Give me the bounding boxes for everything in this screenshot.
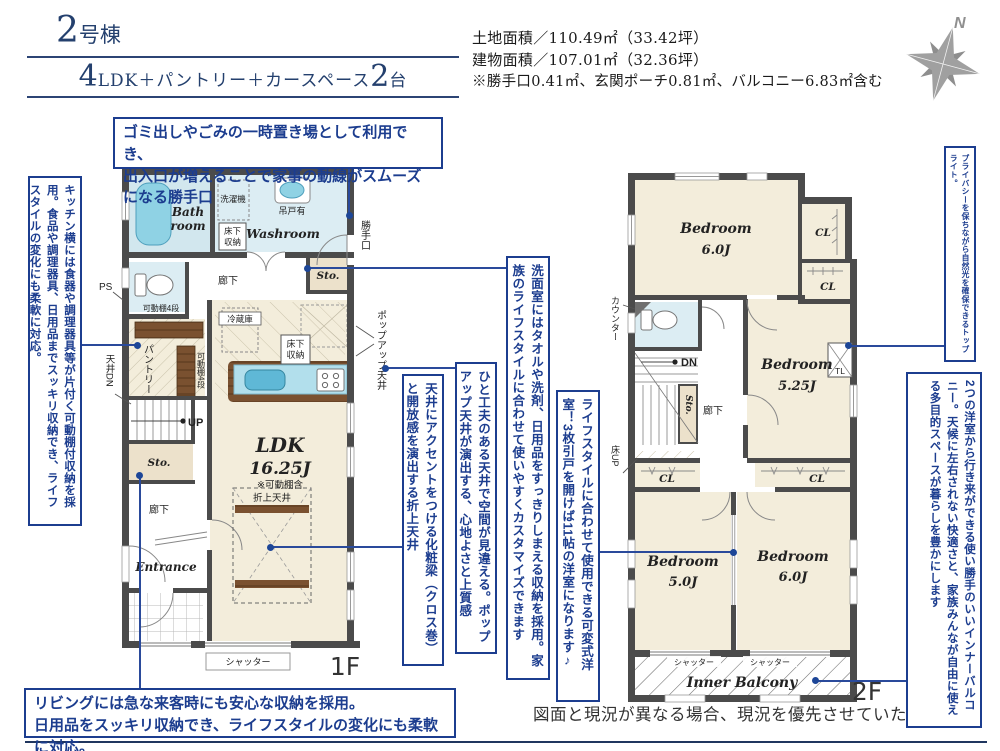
leader-popup <box>385 367 455 369</box>
leader-dot-washroom <box>304 265 311 272</box>
svg-text:6.0J: 6.0J <box>702 243 732 258</box>
floorplan-page: 2号棟 4LDK＋パントリー＋カースペース2台 土地面積／110.49㎡（33.… <box>0 0 1000 751</box>
pantry-shelf-icon <box>135 322 203 338</box>
leader-toplight <box>848 345 944 347</box>
note-living: リビングには急な来客時にも安心な収納を採用。 日用品をスッキリ収納でき、ライフス… <box>24 688 456 738</box>
land-area: 土地面積／110.49㎡（33.42坪） <box>472 27 883 49</box>
balcony-label: Inner Balcony <box>686 675 798 691</box>
leader-dot-living <box>136 472 143 479</box>
leader-dot-kitchen <box>134 342 141 349</box>
plan-num2: 2 <box>370 59 389 94</box>
ldk-label: LDK <box>255 433 306 457</box>
compass-icon: N <box>898 10 990 106</box>
entrance-label: Entrance <box>134 560 197 574</box>
hall1-label: 廊下 <box>218 274 238 287</box>
header-rule-top <box>27 56 459 58</box>
underfloor1-label: 床下 <box>224 226 242 236</box>
leader-beam <box>270 546 402 548</box>
plan-type-line: 4LDK＋パントリー＋カースペース2台 <box>27 59 459 94</box>
toilet2-icon <box>653 311 677 329</box>
leader-kitchen <box>80 344 137 346</box>
oriage-label: 折上天井 <box>253 492 291 504</box>
note-popup-ceiling: ひと工夫のある天井で空間が見違える。ポップアップ天井が演出する、心地よさと上質感 <box>455 362 497 654</box>
ldk-size-label: 16.25J <box>249 459 311 479</box>
hang-cabinet-label: 吊戸有 <box>278 205 305 216</box>
compass-n-label: N <box>954 15 966 32</box>
yuka-up-label: 床UP <box>610 444 620 467</box>
shelf1-label: 可動棚4段 <box>143 303 179 313</box>
svg-text:5.25J: 5.25J <box>778 379 817 394</box>
up-label: UP <box>188 417 203 429</box>
leader-dot-toplight <box>845 342 852 349</box>
washroom-label: Washroom <box>246 226 320 241</box>
note-balcony: 2つの洋室から行き来ができる使い勝手のいいインナーバルコニー。天候に左右されない… <box>906 372 982 728</box>
fridge-label: 冷蔵庫 <box>227 314 253 324</box>
page-title: 2号棟 <box>56 10 121 51</box>
leader-dot-katteguchi <box>346 212 353 219</box>
building-area: 建物面積／107.01㎡（32.36坪） <box>472 49 883 71</box>
sto-left-label: Sto. <box>148 457 171 469</box>
ldk-note-label: ※可動棚含 <box>257 479 303 491</box>
br4-label: Bedroom <box>756 549 828 565</box>
br1-label: Bedroom <box>679 221 751 237</box>
svg-text:収納: 収納 <box>286 349 304 360</box>
sto-top-label: Sto. <box>317 270 340 282</box>
cl3-label: CL <box>659 473 675 485</box>
underfloor2-label: 床下 <box>286 338 304 349</box>
leader-balcony <box>815 680 906 682</box>
svg-text:収納: 収納 <box>224 237 241 247</box>
hall-2f-label: 廊下 <box>703 404 723 417</box>
kitchen-shelf-icon <box>177 346 195 396</box>
washer-label: 洗濯機 <box>220 194 246 204</box>
cl4-label: CL <box>809 473 825 485</box>
leader-dot-popup <box>382 365 389 372</box>
leader-dot-beam <box>267 544 274 551</box>
plan-num1: 4 <box>79 59 98 94</box>
leader-dot-balcony <box>812 677 819 684</box>
bath-label2: room <box>170 219 205 233</box>
stove-icon <box>317 369 344 391</box>
dn-label: DN <box>681 357 697 369</box>
stairs-1f-icon <box>137 400 185 440</box>
sto-2f-label: Sto. <box>683 395 693 415</box>
note-katteguchi: ゴミ出しやごみの一時置き場として利用でき、 出入口が増えることで家事の動線がスム… <box>113 117 443 169</box>
area-note: ※勝手口0.41㎡、玄関ポーチ0.81㎡、バルコニー6.83㎡含む <box>472 71 883 93</box>
kitchen-sink-icon <box>245 370 285 390</box>
shelf2-label: 可動棚4段 <box>197 352 206 389</box>
shutter2-label: シャッター <box>750 658 790 667</box>
leader-dot-flex-room <box>730 549 737 556</box>
cl1-label: CL <box>815 227 831 239</box>
note-washroom: 洗面室にはタオルや洗剤、日用品をすっきりしまえる収納を採用。家族のライフスタイル… <box>506 256 550 680</box>
svg-text:5.0J: 5.0J <box>669 575 699 590</box>
plan-mid: LDK＋パントリー＋カースペース <box>98 71 371 91</box>
area-figures: 土地面積／110.49㎡（33.42坪） 建物面積／107.01㎡（32.36坪… <box>472 27 883 93</box>
bottom-rule <box>25 741 987 743</box>
br2-label: Bedroom <box>760 357 832 373</box>
ps-label: PS <box>99 282 113 293</box>
ceiling-dn-label: 天井DN <box>104 354 116 387</box>
leader-living <box>139 475 141 688</box>
toilet-icon <box>147 275 173 295</box>
br3-label: Bedroom <box>646 554 718 570</box>
unit-suffix: 号棟 <box>79 23 121 47</box>
note-kitchen: キッチン横には食器や調理器具等が片付く可動棚付収納を採用。食品や調理器具、日用品… <box>28 176 82 526</box>
hall2-label: 廊下 <box>149 503 169 516</box>
note-toplight: プライバシーを保ちながら自然光を確保できるトップライト。 <box>944 146 976 362</box>
floor1-label: 1F <box>330 652 360 680</box>
leader-flex-room <box>598 551 733 553</box>
unit-number: 2 <box>56 10 79 51</box>
cl2-label: CL <box>820 281 836 293</box>
counter-label: カウンター <box>610 296 620 341</box>
note-flex-room: ライフスタイルに合わせて使用できる可変式洋室！3枚引戸を開けば11帖の洋室になり… <box>556 390 600 702</box>
header-rule-bottom <box>27 96 459 98</box>
plan-tail: 台 <box>389 71 407 91</box>
shutter-label: シャッター <box>225 657 270 667</box>
popup-ceiling-label: ポップアップ天井 <box>375 310 387 391</box>
note-beam: 天井にアクセントをつける化粧梁（クロス巻）と開放感を演出する折上天井 <box>402 374 444 666</box>
pantry-label: パントリー <box>142 344 154 394</box>
svg-text:6.0J: 6.0J <box>779 570 809 585</box>
shutter1-label: シャッター <box>674 658 714 667</box>
tl-label: TL <box>835 366 845 376</box>
leader-washroom <box>307 267 506 269</box>
katteguchi-label: 勝手口 <box>359 219 371 250</box>
floor2-plan: Bedroom 6.0J CL CL カウンター DN Sto. 廊下 Bedr… <box>595 155 895 705</box>
